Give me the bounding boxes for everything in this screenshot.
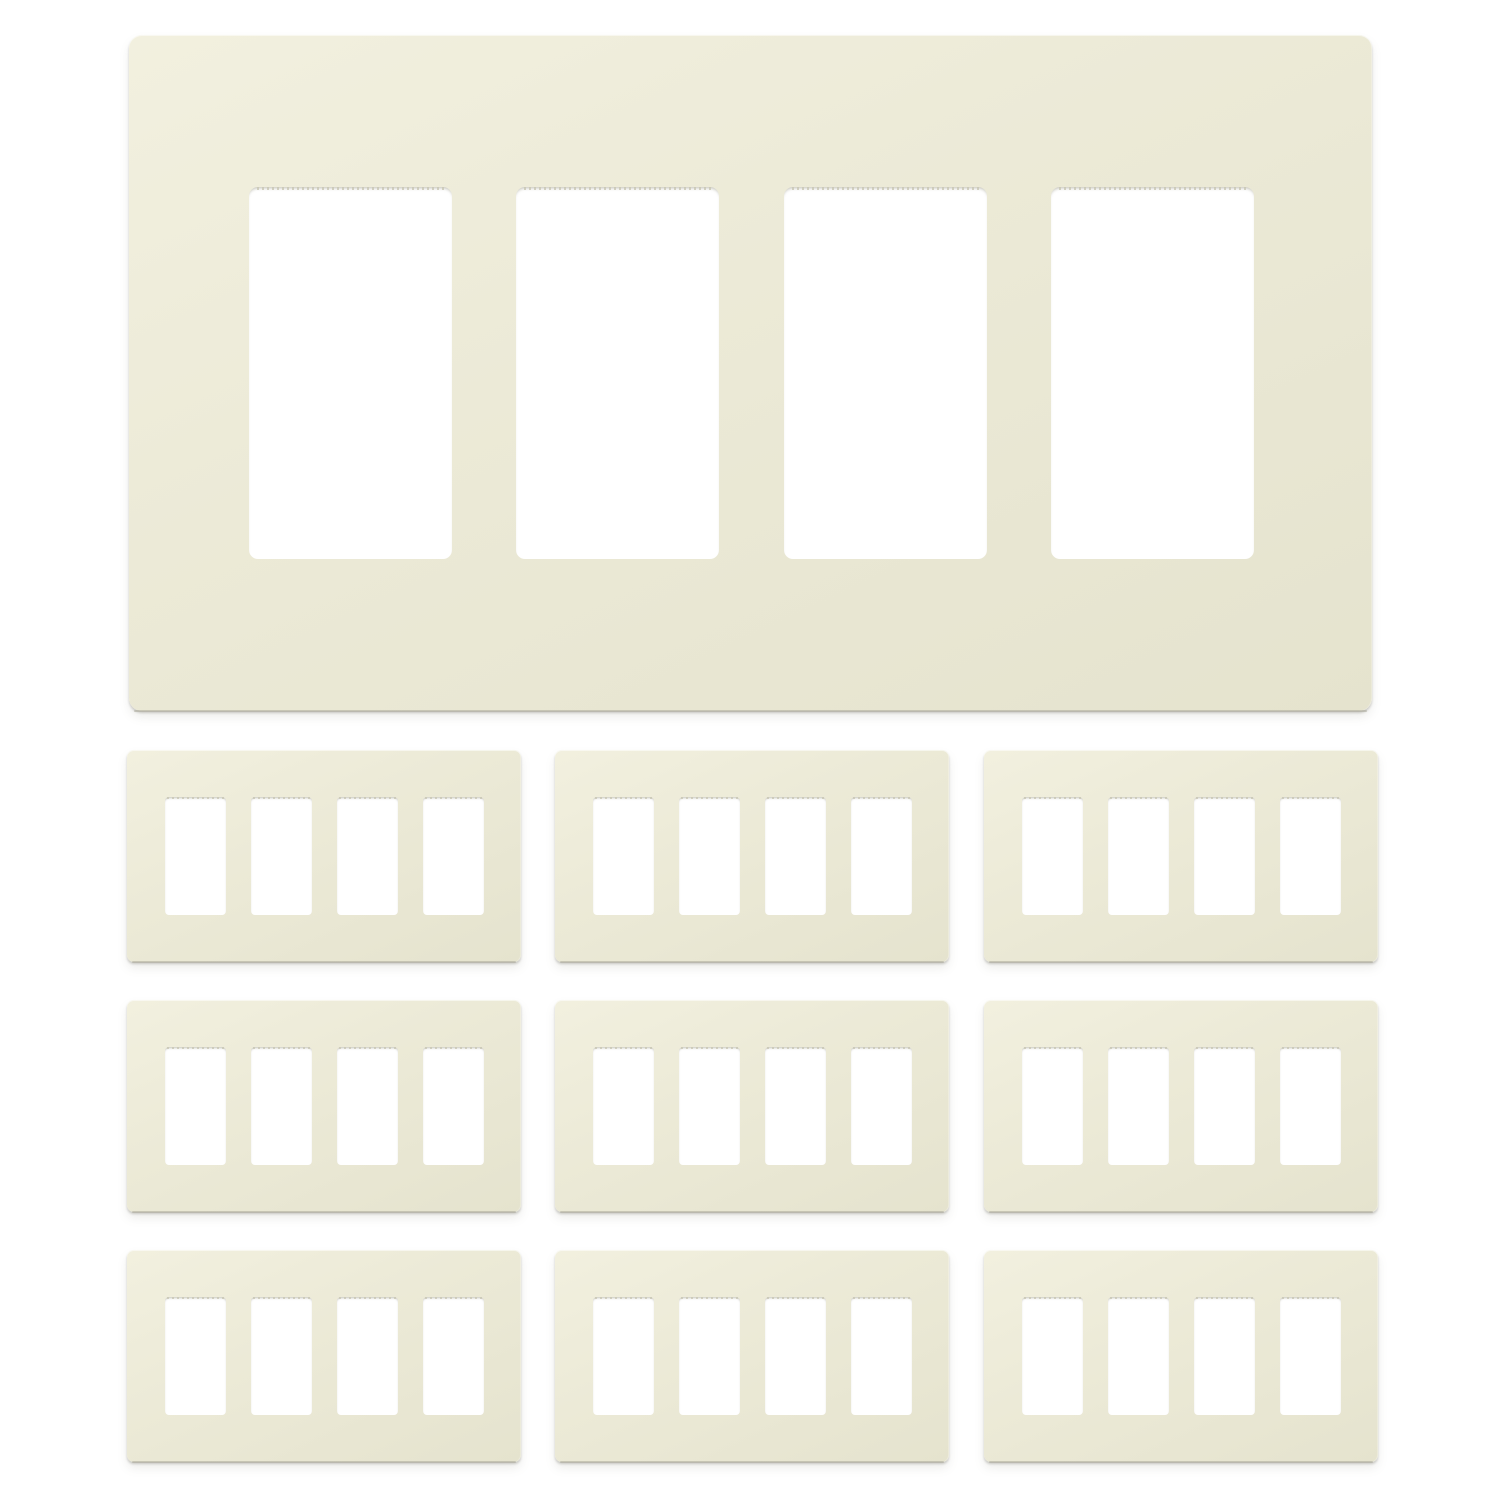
gang-cutout bbox=[1108, 797, 1169, 915]
small-wall-plate-r1-c3 bbox=[984, 750, 1378, 962]
gang-cutout bbox=[1108, 1297, 1169, 1415]
gang-cutout bbox=[593, 1297, 654, 1415]
gang-cutout bbox=[423, 797, 484, 915]
gang-cutout bbox=[1022, 1047, 1083, 1165]
gang-cutout bbox=[593, 797, 654, 915]
small-wall-plate-r3-c3 bbox=[984, 1250, 1378, 1462]
gang-cutout bbox=[1280, 1297, 1341, 1415]
gang-cutout bbox=[851, 1047, 912, 1165]
small-wall-plate-r3-c1 bbox=[127, 1250, 521, 1462]
gang-cutout bbox=[423, 1297, 484, 1415]
gang-cutout bbox=[337, 1297, 398, 1415]
gang-cutout bbox=[765, 797, 826, 915]
gang-cutout bbox=[251, 1047, 312, 1165]
gang-cutout bbox=[1280, 797, 1341, 915]
small-wall-plate-r3-c2 bbox=[555, 1250, 949, 1462]
gang-cutout bbox=[1194, 1297, 1255, 1415]
gang-cutout bbox=[516, 187, 719, 559]
gang-cutout bbox=[423, 1047, 484, 1165]
gang-cutout bbox=[1280, 1047, 1341, 1165]
gang-cutout bbox=[1022, 1297, 1083, 1415]
gang-cutout bbox=[765, 1297, 826, 1415]
gang-cutout bbox=[251, 797, 312, 915]
gang-cutout bbox=[679, 1297, 740, 1415]
gang-cutout bbox=[337, 1047, 398, 1165]
gang-cutout bbox=[1108, 1047, 1169, 1165]
gang-cutout bbox=[1194, 1047, 1255, 1165]
small-wall-plate-r2-c3 bbox=[984, 1000, 1378, 1212]
gang-cutout bbox=[1051, 187, 1254, 559]
large-wall-plate bbox=[129, 35, 1372, 711]
gang-cutout bbox=[784, 187, 987, 559]
gang-cutout bbox=[765, 1047, 826, 1165]
gang-cutout bbox=[679, 1047, 740, 1165]
small-wall-plate-r1-c2 bbox=[555, 750, 949, 962]
gang-cutout bbox=[1194, 797, 1255, 915]
gang-cutout bbox=[1022, 797, 1083, 915]
small-wall-plate-r2-c2 bbox=[555, 1000, 949, 1212]
gang-cutout bbox=[251, 1297, 312, 1415]
gang-cutout bbox=[165, 1047, 226, 1165]
gang-cutout bbox=[851, 797, 912, 915]
gang-cutout bbox=[165, 797, 226, 915]
gang-cutout bbox=[593, 1047, 654, 1165]
gang-cutout bbox=[249, 187, 452, 559]
small-wall-plate-r2-c1 bbox=[127, 1000, 521, 1212]
gang-cutout bbox=[679, 797, 740, 915]
small-wall-plate-r1-c1 bbox=[127, 750, 521, 962]
product-photo-canvas bbox=[0, 0, 1500, 1500]
gang-cutout bbox=[165, 1297, 226, 1415]
gang-cutout bbox=[851, 1297, 912, 1415]
gang-cutout bbox=[337, 797, 398, 915]
